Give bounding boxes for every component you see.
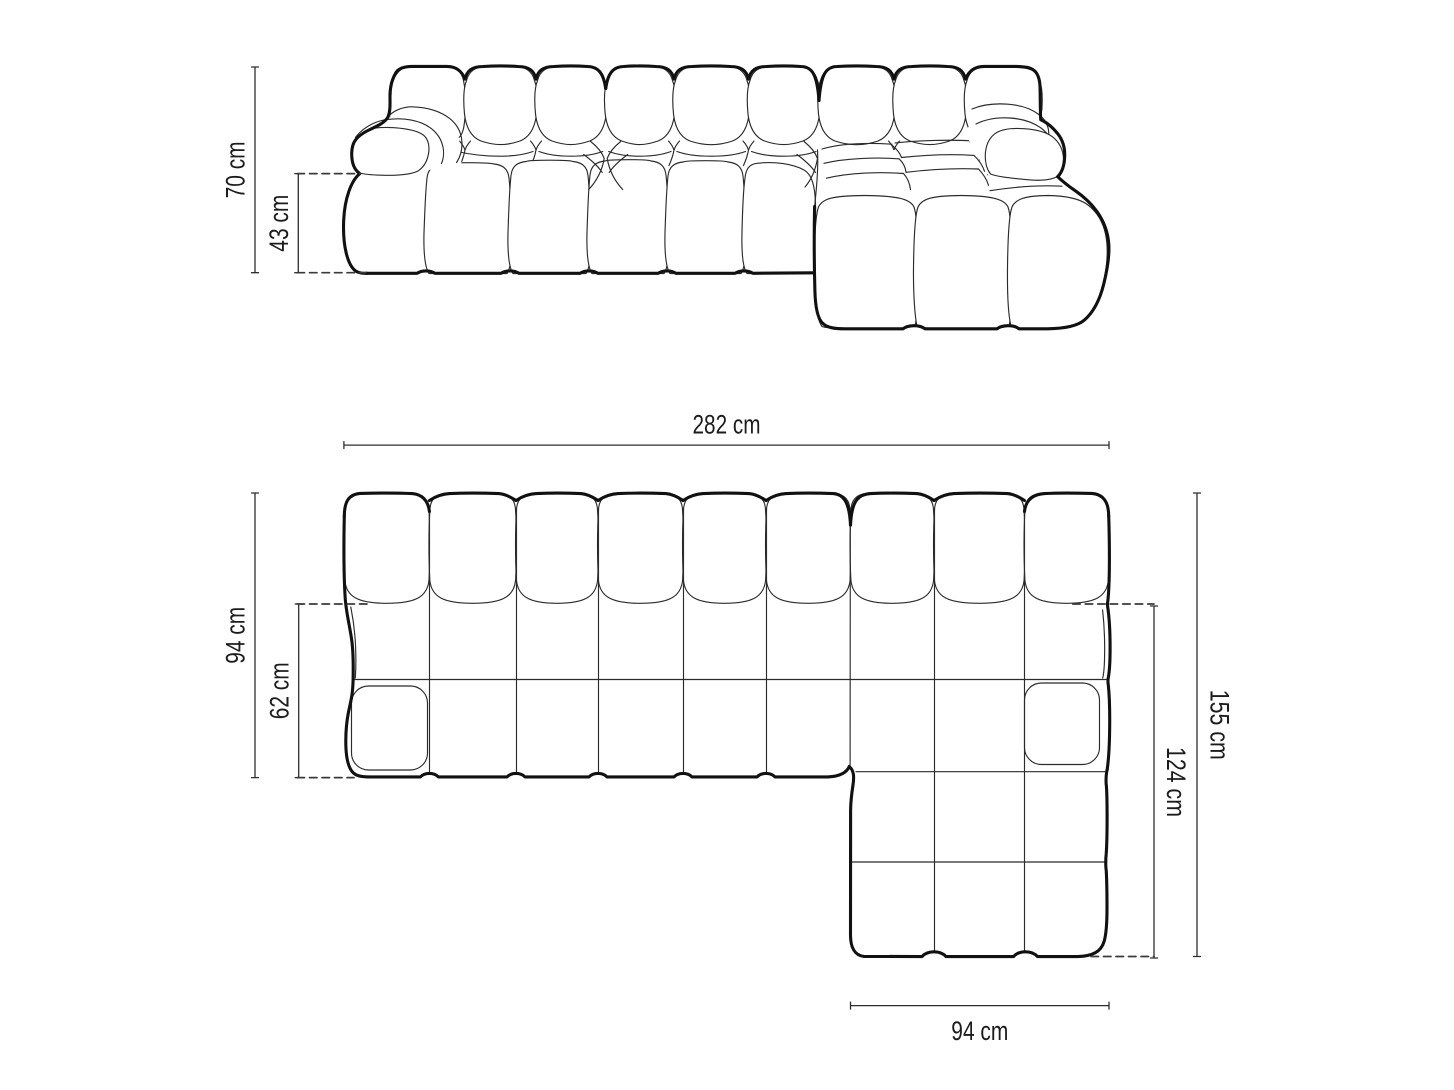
svg-text:155 cm: 155 cm [1205,690,1235,760]
svg-text:94 cm: 94 cm [951,1016,1008,1046]
svg-text:282 cm: 282 cm [693,410,761,440]
svg-text:43 cm: 43 cm [264,195,294,252]
svg-text:124 cm: 124 cm [1161,747,1191,817]
svg-text:94 cm: 94 cm [221,607,251,664]
svg-text:62 cm: 62 cm [264,662,294,719]
svg-text:70 cm: 70 cm [221,141,251,198]
